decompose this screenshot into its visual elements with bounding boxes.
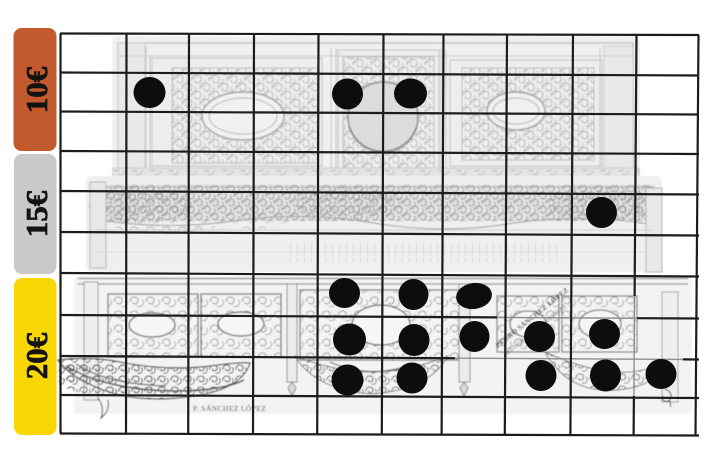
svg-text:10€: 10€ <box>19 66 54 113</box>
svg-text:P. SÁNCHEZ LÓPEZ: P. SÁNCHEZ LÓPEZ <box>193 403 266 413</box>
svg-text:15€: 15€ <box>19 190 54 237</box>
svg-text:20€: 20€ <box>19 332 54 379</box>
